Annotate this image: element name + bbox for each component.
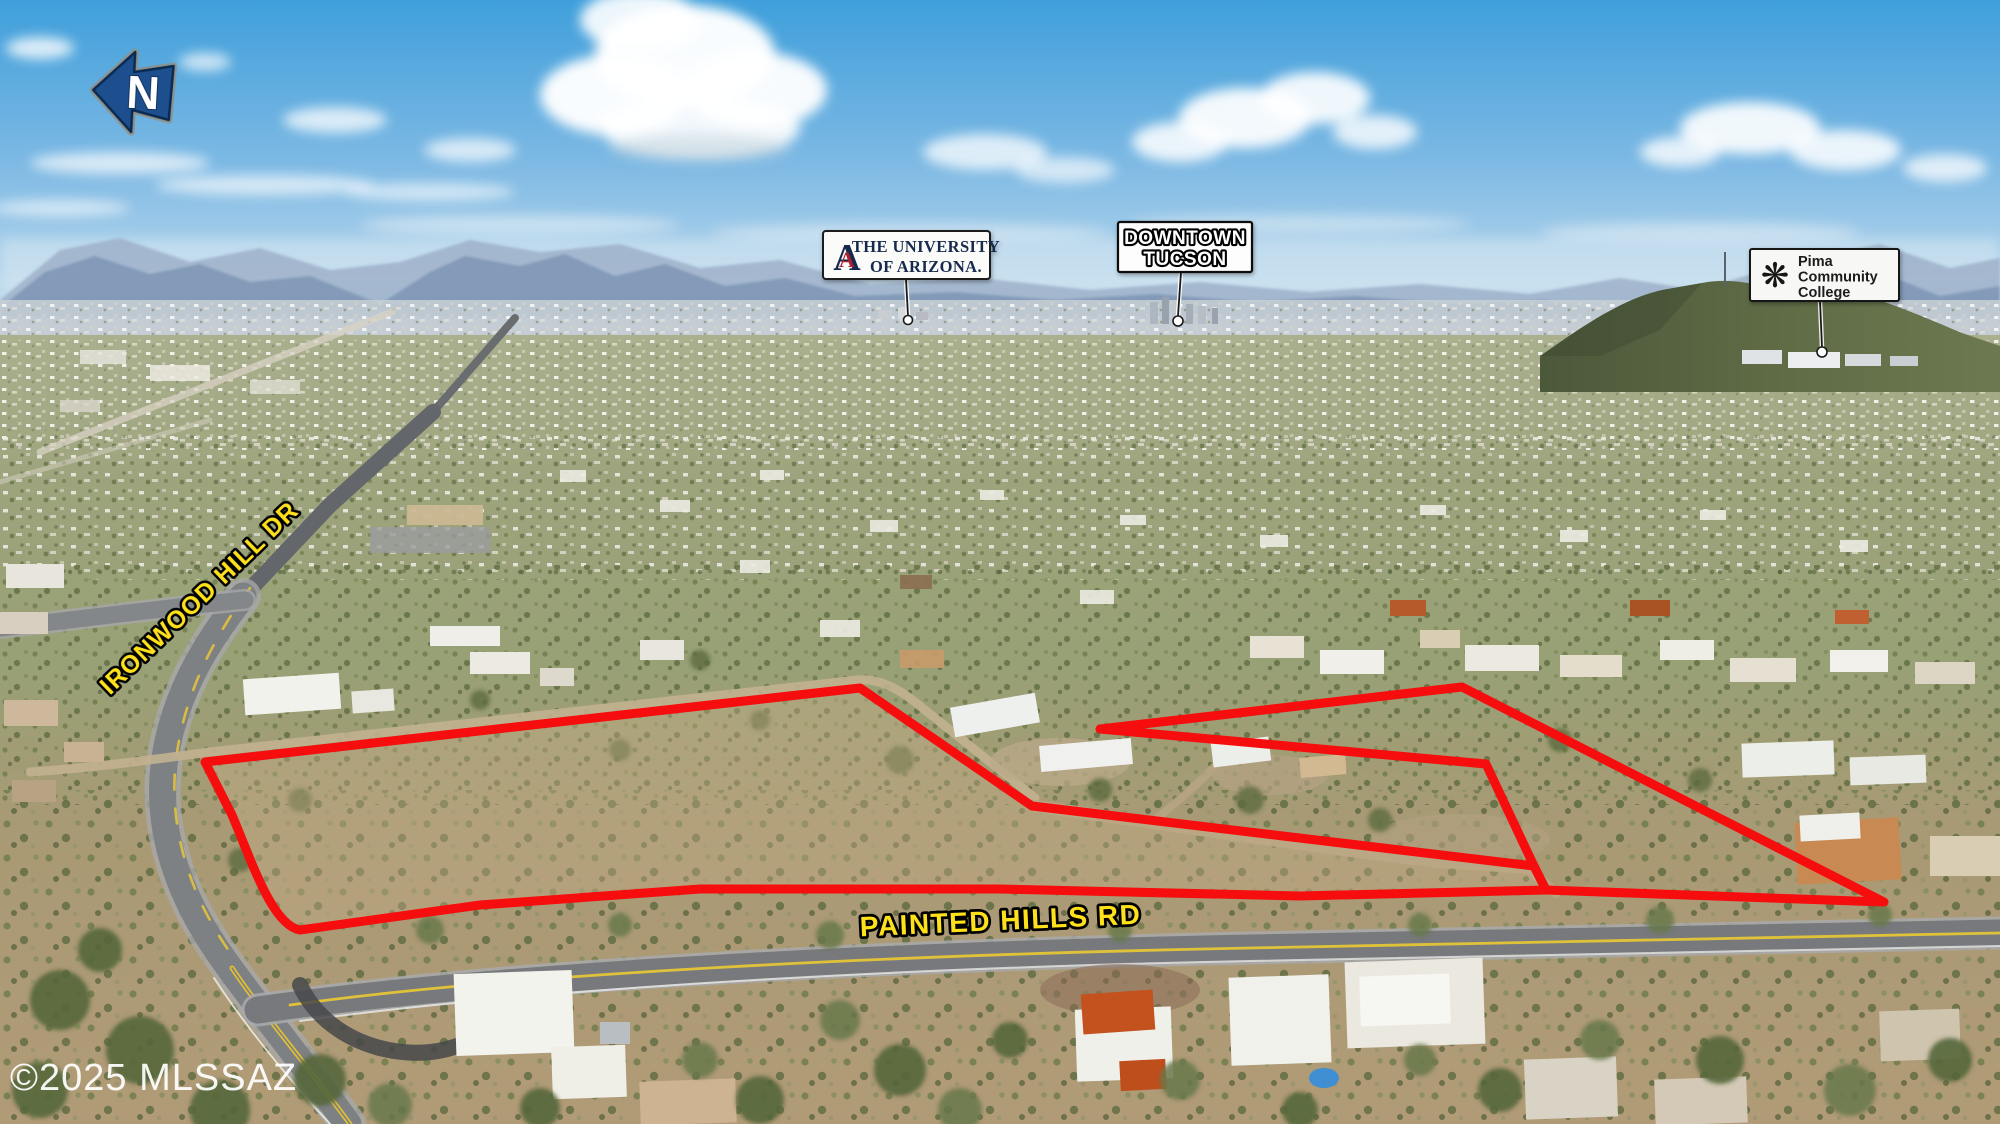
university-of-arizona-label: A A THE UNIVERSITY OF ARIZONA. bbox=[823, 231, 1000, 279]
ua-label-line1: THE UNIVERSITY bbox=[852, 237, 1000, 256]
downtown-dot bbox=[1173, 316, 1183, 326]
pima-label-line2: Community bbox=[1798, 270, 1878, 286]
pima-dot bbox=[1817, 347, 1827, 357]
aerial-scene: A A THE UNIVERSITY OF ARIZONA. DOWNTOWN … bbox=[0, 0, 2000, 1124]
mls-watermark: ©2025 MLSSAZ bbox=[10, 1057, 297, 1099]
downtown-label-line1: DOWNTOWN bbox=[1124, 228, 1246, 249]
north-arrow-letter: N bbox=[125, 66, 161, 120]
downtown-tucson-label: DOWNTOWN TUCSON bbox=[1118, 222, 1252, 272]
downtown-label-line2: TUCSON bbox=[1143, 249, 1226, 270]
pima-community-college-label: ❋ Pima Community College bbox=[1750, 249, 1899, 301]
pima-logo-icon: ❋ bbox=[1761, 256, 1790, 296]
pima-label-line1: Pima bbox=[1798, 254, 1834, 270]
aerial-listing-photo: A A THE UNIVERSITY OF ARIZONA. DOWNTOWN … bbox=[0, 0, 2000, 1124]
ua-label-line2: OF ARIZONA. bbox=[870, 257, 982, 276]
university-dot bbox=[904, 316, 913, 325]
pima-label-line3: College bbox=[1798, 285, 1850, 301]
